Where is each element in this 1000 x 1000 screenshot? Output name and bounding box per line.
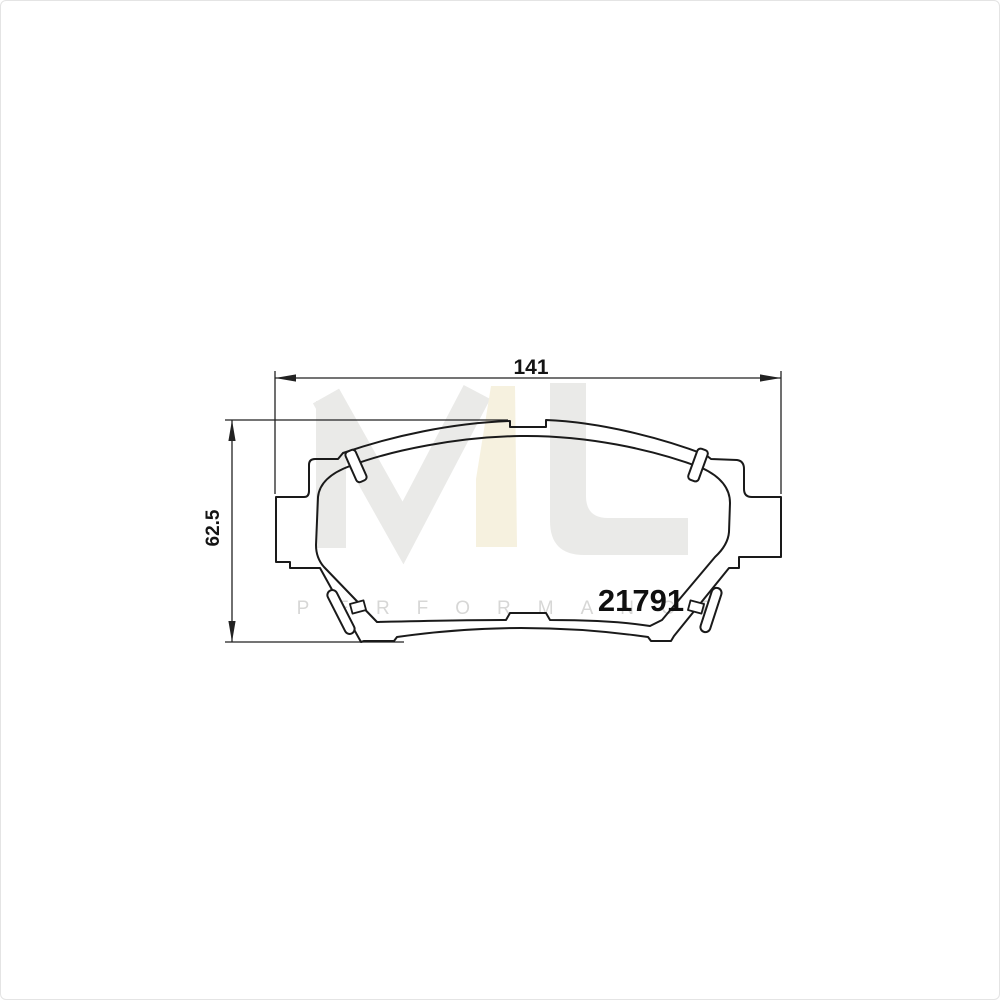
width-dimension-label: 141 [513,356,548,379]
width-arrow-left [275,374,296,381]
height-dimension-label: 62.5 [203,509,224,546]
watermark-monogram-m [326,392,477,548]
right-clip-slot [687,448,709,483]
technical-drawing-canvas: PERFORMANCE 141 62.5 [0,0,1000,1000]
watermark-monogram-l [550,383,688,555]
product-image: PERFORMANCE 141 62.5 [0,0,1000,1000]
height-arrow-bottom [228,621,235,642]
width-arrow-right [760,374,781,381]
height-arrow-top [228,420,235,441]
part-number-label: 21791 [598,583,684,618]
